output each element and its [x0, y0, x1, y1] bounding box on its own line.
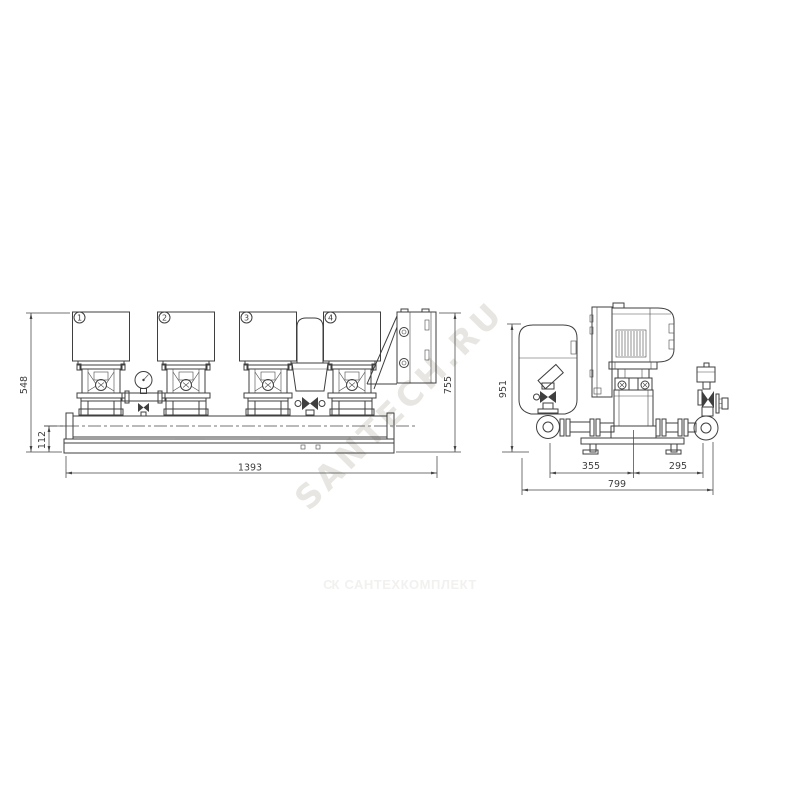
suction-valve-assembly [534, 365, 615, 439]
pressure-gauge-assembly [122, 372, 165, 417]
pump-unit-4: 4 [324, 312, 381, 415]
dim-951-label: 951 [498, 380, 509, 398]
dim-1393-label: 1393 [238, 463, 262, 474]
control-cabinet [367, 309, 436, 389]
pump-unit-2: 2 [158, 312, 215, 415]
dimension-base-height: 112 [37, 426, 66, 452]
pump-4-label: 4 [328, 314, 333, 323]
dimension-front-width: 1393 [66, 456, 437, 478]
pump-2-label: 2 [162, 314, 167, 323]
dim-295-label: 295 [669, 461, 687, 472]
dim-112-label: 112 [37, 431, 48, 449]
drawing-page: SANTECH.RU СКСАНТЕХКОМПЛЕКТ [0, 0, 800, 800]
pilot-tank-valve-assembly [292, 318, 328, 415]
dim-755-label: 755 [443, 376, 454, 394]
dim-548-label: 548 [19, 376, 30, 394]
dimension-side-height: 951 [498, 324, 529, 452]
diaphragm-tank [519, 325, 577, 414]
base-frame [64, 439, 394, 453]
pump-3-label: 3 [244, 314, 249, 323]
pump-unit-3: 3 [240, 312, 297, 415]
pump-set-technical-drawing: 1 2 3 4 [0, 0, 800, 800]
dim-799-label: 799 [608, 479, 626, 490]
pump-1-label: 1 [77, 314, 82, 323]
side-view: 951 355 295 799 [498, 303, 728, 495]
pump-unit-1: 1 [73, 312, 130, 415]
front-view: 1 2 3 4 [19, 309, 461, 478]
discharge-valve-assembly [656, 363, 728, 440]
dim-355-label: 355 [582, 461, 600, 472]
manifold [44, 413, 416, 439]
